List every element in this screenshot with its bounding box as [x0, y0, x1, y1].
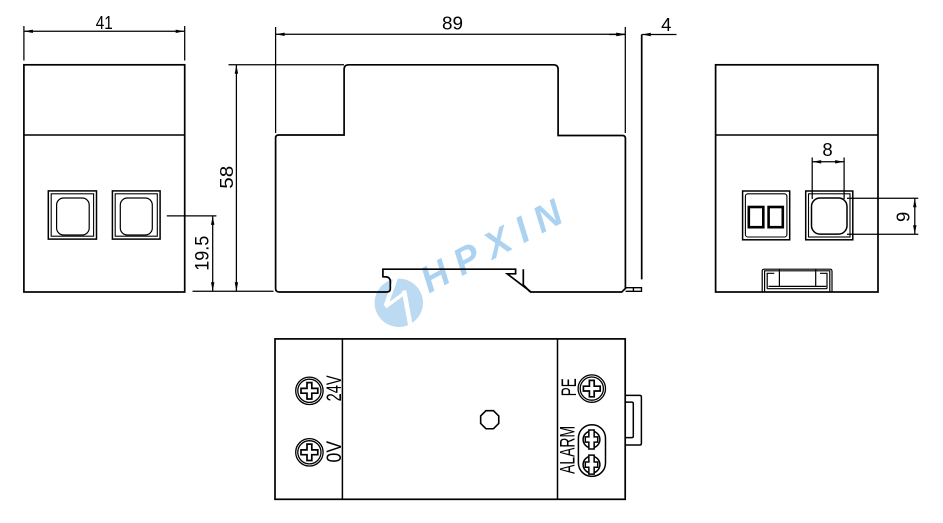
svg-text:ALARM: ALARM: [557, 426, 580, 474]
svg-text:89: 89: [442, 13, 463, 34]
svg-text:9: 9: [893, 212, 914, 222]
svg-text:24V: 24V: [323, 375, 346, 401]
svg-text:58: 58: [216, 166, 237, 189]
svg-text:19.5: 19.5: [193, 236, 214, 271]
svg-text:0V: 0V: [323, 441, 346, 463]
svg-text:4: 4: [661, 14, 671, 35]
svg-text:8: 8: [822, 139, 832, 160]
svg-text:41: 41: [96, 12, 113, 33]
